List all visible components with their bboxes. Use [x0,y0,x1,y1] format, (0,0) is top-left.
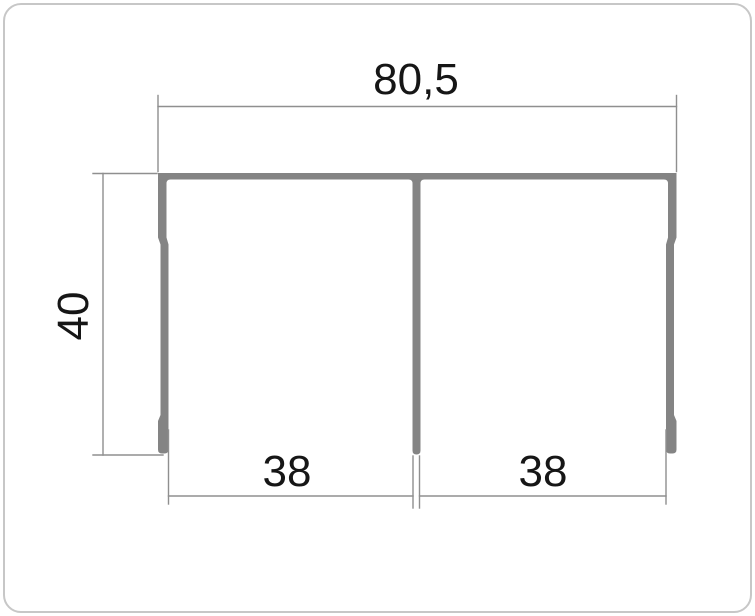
drawing-page: 80,5 40 38 38 [0,0,755,616]
label-height: 40 [49,292,98,341]
profile-dimension-drawing: 80,5 40 38 38 [0,0,755,616]
label-overall-width: 80,5 [373,55,459,104]
label-bay-right: 38 [519,447,568,496]
dimension-lines [93,96,677,509]
label-bay-left: 38 [263,447,312,496]
profile-cross-section [158,173,677,455]
dimension-labels: 80,5 40 38 38 [49,55,567,496]
